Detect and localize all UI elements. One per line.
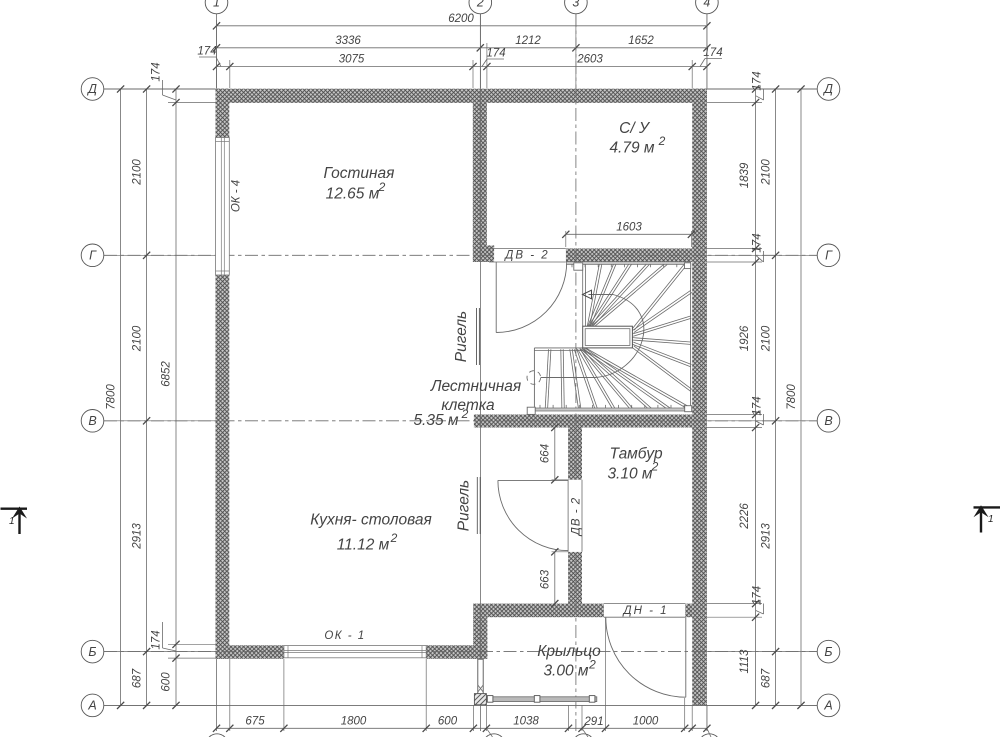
svg-text:Лестничная: Лестничная [430,378,521,395]
svg-text:174: 174 [151,630,163,649]
svg-text:2: 2 [588,658,596,672]
svg-text:600: 600 [161,672,173,692]
svg-text:1603: 1603 [616,222,642,234]
svg-text:2: 2 [390,531,398,545]
svg-text:ОК - 1: ОК - 1 [324,630,365,642]
svg-text:663: 663 [540,569,552,589]
svg-text:2: 2 [378,180,386,194]
svg-text:174: 174 [703,47,722,59]
svg-text:3075: 3075 [339,54,365,66]
svg-text:174: 174 [197,46,216,58]
svg-text:ДН - 1: ДН - 1 [621,605,668,617]
svg-text:174: 174 [752,233,764,252]
svg-text:Г: Г [825,249,833,263]
svg-text:ДВ - 2: ДВ - 2 [503,250,549,262]
svg-text:1: 1 [9,516,15,527]
svg-text:1: 1 [213,0,220,10]
svg-text:11.12 м: 11.12 м [337,537,390,554]
svg-text:Б: Б [824,645,832,659]
svg-text:2603: 2603 [576,54,603,66]
svg-text:1926: 1926 [739,325,751,351]
svg-text:2100: 2100 [761,325,773,352]
svg-text:12.65 м: 12.65 м [326,186,380,203]
svg-text:687: 687 [132,668,144,688]
svg-text:7800: 7800 [106,384,118,410]
svg-text:174: 174 [752,396,764,415]
svg-text:ДВ - 2: ДВ - 2 [571,497,583,537]
svg-text:2226: 2226 [739,503,751,530]
svg-text:2913: 2913 [761,523,773,550]
svg-text:6852: 6852 [161,361,173,387]
svg-text:1113: 1113 [739,649,751,673]
svg-text:2100: 2100 [132,325,144,352]
svg-text:С/ У: С/ У [619,120,651,137]
svg-text:7800: 7800 [786,384,798,410]
svg-text:1: 1 [988,514,994,525]
svg-text:3.00 м: 3.00 м [543,663,588,680]
svg-text:Г: Г [89,249,97,263]
svg-text:174: 174 [752,71,764,90]
svg-text:3.10 м: 3.10 м [607,466,652,483]
svg-text:В: В [824,414,832,428]
svg-text:6200: 6200 [448,13,474,25]
svg-text:Ригель: Ригель [456,480,473,531]
svg-text:291: 291 [583,716,603,728]
svg-text:5.35 м: 5.35 м [413,412,458,429]
svg-text:1000: 1000 [633,716,659,728]
svg-text:Ригель: Ригель [453,311,470,362]
svg-text:А: А [87,699,96,713]
svg-text:2: 2 [476,0,484,10]
svg-text:2: 2 [651,460,659,474]
svg-text:174: 174 [151,62,163,81]
svg-text:4: 4 [703,0,710,10]
svg-text:675: 675 [245,716,265,728]
svg-text:1839: 1839 [739,162,751,188]
svg-text:1212: 1212 [515,35,541,47]
svg-text:1652: 1652 [628,35,654,47]
svg-text:1800: 1800 [341,716,367,728]
svg-text:2: 2 [461,407,469,421]
svg-text:3336: 3336 [335,35,361,47]
svg-text:В: В [88,414,96,428]
svg-text:ОК - 4: ОК - 4 [231,180,243,212]
svg-text:2: 2 [658,134,666,148]
svg-text:Д: Д [86,82,97,96]
svg-text:174: 174 [752,586,764,605]
svg-text:600: 600 [438,716,458,728]
svg-text:2913: 2913 [132,523,144,550]
svg-text:664: 664 [540,444,552,463]
svg-text:Д: Д [822,82,833,96]
svg-text:2100: 2100 [761,159,773,186]
svg-text:174: 174 [486,48,505,60]
svg-text:Кухня- столовая: Кухня- столовая [310,512,432,529]
svg-text:3: 3 [572,0,579,10]
svg-text:Б: Б [88,645,96,659]
svg-text:1038: 1038 [513,716,539,728]
svg-text:А: А [823,699,832,713]
svg-text:4.79 м: 4.79 м [609,140,654,157]
svg-text:2100: 2100 [132,159,144,186]
svg-text:687: 687 [761,668,773,688]
